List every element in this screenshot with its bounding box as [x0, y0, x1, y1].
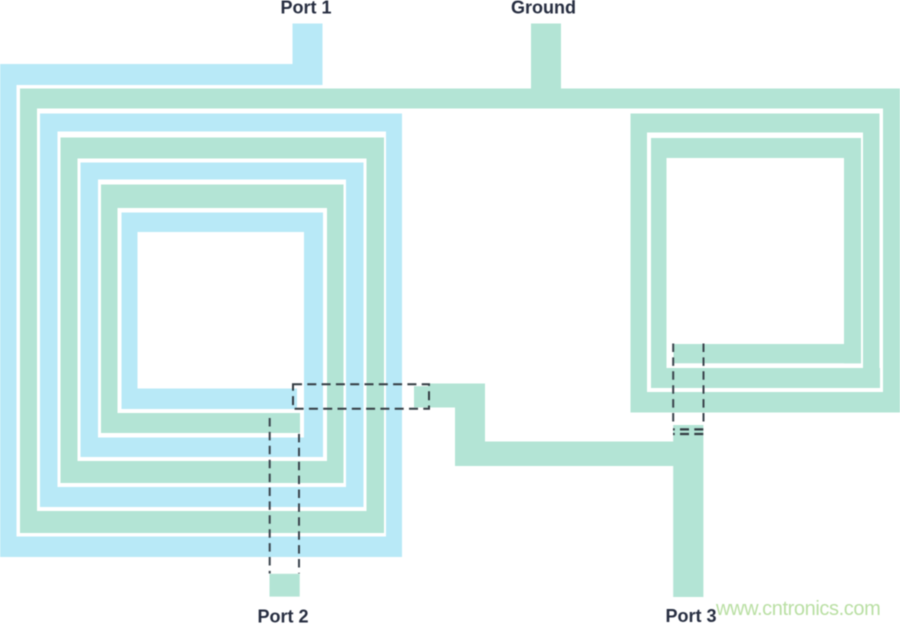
- svg-text:Port 2: Port 2: [257, 607, 308, 625]
- svg-text:www.cntronics.com: www.cntronics.com: [715, 598, 880, 620]
- svg-text:Port 3: Port 3: [665, 606, 716, 625]
- svg-text:Ground: Ground: [511, 0, 576, 18]
- svg-text:Port 1: Port 1: [280, 0, 331, 18]
